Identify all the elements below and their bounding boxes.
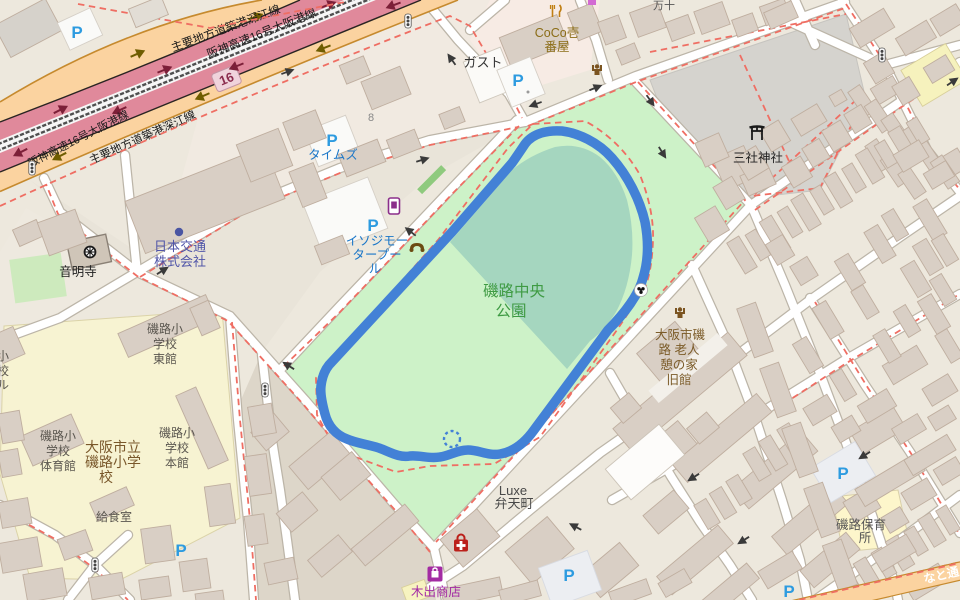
svg-text:イソジモー: イソジモー bbox=[346, 234, 409, 248]
svg-text:木出商店: 木出商店 bbox=[411, 584, 461, 599]
svg-text:タープー: タープー bbox=[352, 248, 401, 262]
svg-text:CoCo壱: CoCo壱 bbox=[535, 26, 579, 40]
svg-text:磯路中央: 磯路中央 bbox=[483, 282, 546, 300]
svg-text:所: 所 bbox=[859, 531, 872, 545]
svg-text:校: 校 bbox=[99, 469, 113, 485]
svg-text:P: P bbox=[71, 23, 82, 42]
svg-text:P: P bbox=[783, 582, 794, 600]
svg-text:本館: 本館 bbox=[165, 455, 189, 470]
svg-text:株式会社: 株式会社 bbox=[154, 254, 206, 269]
svg-text:日本交通: 日本交通 bbox=[154, 239, 206, 254]
svg-text:磯路小学: 磯路小学 bbox=[85, 454, 141, 470]
svg-text:校: 校 bbox=[0, 363, 9, 378]
svg-text:P: P bbox=[175, 541, 186, 560]
svg-text:大阪市磯: 大阪市磯 bbox=[655, 327, 705, 342]
svg-text:音明寺: 音明寺 bbox=[59, 264, 97, 279]
svg-text:P: P bbox=[512, 71, 523, 90]
svg-text:給食室: 給食室 bbox=[96, 509, 132, 524]
svg-text:磯路保育: 磯路保育 bbox=[836, 517, 886, 532]
svg-text:大阪市立: 大阪市立 bbox=[85, 439, 141, 455]
svg-text:タイムズ: タイムズ bbox=[308, 147, 358, 162]
svg-text:ル: ル bbox=[369, 262, 382, 276]
svg-text:磯路小: 磯路小 bbox=[159, 425, 195, 440]
svg-text:路 老人: 路 老人 bbox=[659, 342, 700, 357]
svg-text:体育館: 体育館 bbox=[40, 458, 76, 473]
svg-text:学校: 学校 bbox=[153, 336, 177, 351]
svg-text:8: 8 bbox=[368, 112, 374, 124]
svg-text:P: P bbox=[563, 566, 574, 585]
svg-text:旧館: 旧館 bbox=[666, 372, 691, 387]
svg-text:憩の家: 憩の家 bbox=[660, 357, 698, 372]
svg-text:学校: 学校 bbox=[165, 440, 189, 455]
svg-text:P: P bbox=[367, 216, 378, 235]
svg-text:ガスト: ガスト bbox=[463, 55, 502, 70]
svg-text:ル: ル bbox=[0, 378, 9, 392]
svg-text:東館: 東館 bbox=[153, 351, 177, 366]
svg-text:磯路小: 磯路小 bbox=[40, 428, 76, 443]
svg-text:公園: 公園 bbox=[495, 303, 526, 320]
svg-text:三社神社: 三社神社 bbox=[733, 150, 783, 165]
svg-text:弁天町: 弁天町 bbox=[494, 496, 533, 511]
svg-text:学校: 学校 bbox=[46, 443, 70, 458]
svg-text:万十: 万十 bbox=[653, 0, 675, 12]
svg-text:P: P bbox=[837, 464, 848, 483]
svg-text:小: 小 bbox=[0, 349, 9, 363]
svg-text:番屋: 番屋 bbox=[544, 40, 569, 54]
svg-text:磯路小: 磯路小 bbox=[147, 321, 183, 336]
